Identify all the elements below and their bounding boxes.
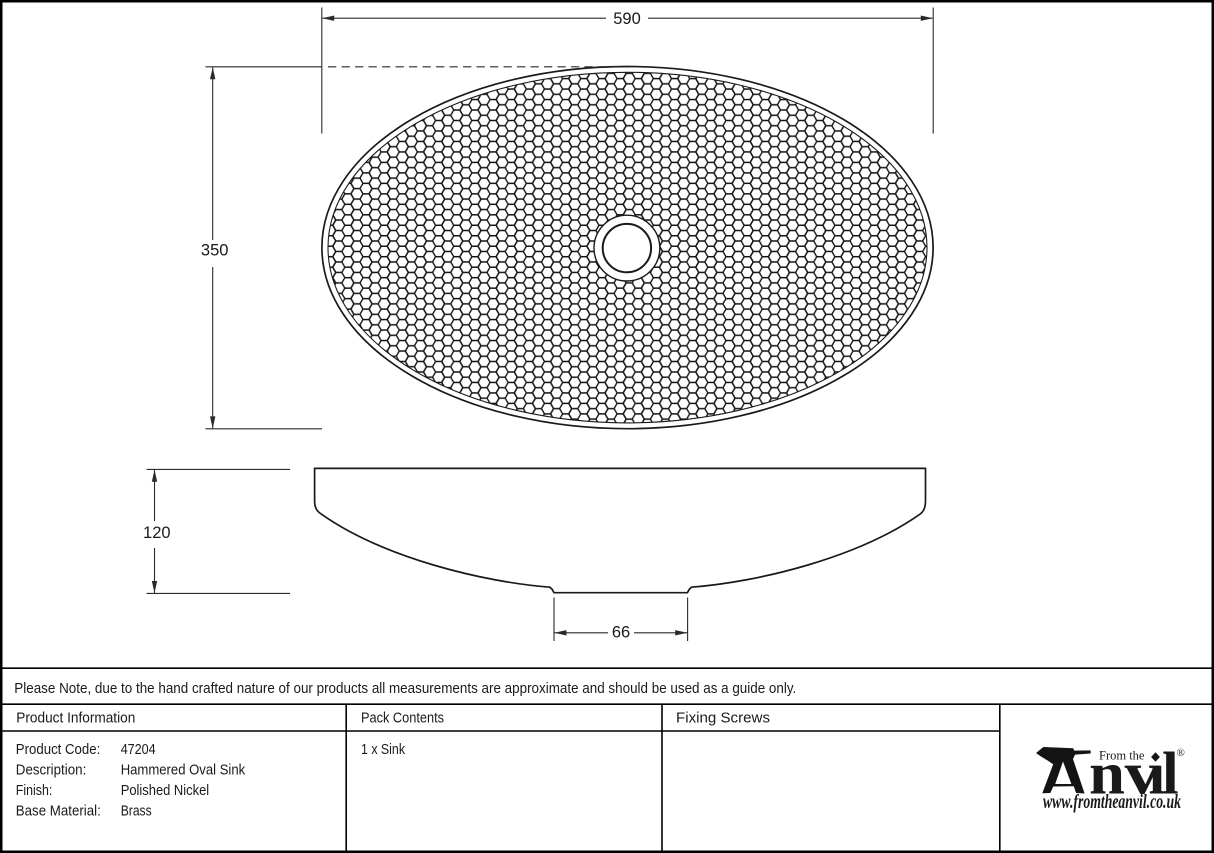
svg-text:Description:: Description: [16,763,87,779]
svg-text:Pack Contents: Pack Contents [361,711,444,727]
svg-text:Finish:: Finish: [16,783,53,799]
svg-text:66: 66 [612,623,630,641]
svg-text:Base Material:: Base Material: [16,803,101,819]
svg-text:47204: 47204 [121,742,156,758]
svg-text:www.fromtheanvil.co.uk: www.fromtheanvil.co.uk [1043,791,1181,813]
svg-text:Brass: Brass [121,803,152,819]
svg-text:120: 120 [143,524,171,542]
svg-text:Product Information: Product Information [16,711,135,727]
svg-text:®: ® [1177,747,1185,759]
svg-text:Polished Nickel: Polished Nickel [121,783,210,799]
svg-text:Please Note, due to the hand c: Please Note, due to the hand crafted nat… [14,680,796,697]
svg-text:Hammered Oval Sink: Hammered Oval Sink [121,763,246,779]
svg-text:350: 350 [201,241,229,259]
svg-text:1 x Sink: 1 x Sink [361,742,406,758]
svg-text:590: 590 [613,10,641,28]
svg-text:Product Code:: Product Code: [16,742,101,758]
svg-text:Fixing Screws: Fixing Screws [676,711,770,727]
